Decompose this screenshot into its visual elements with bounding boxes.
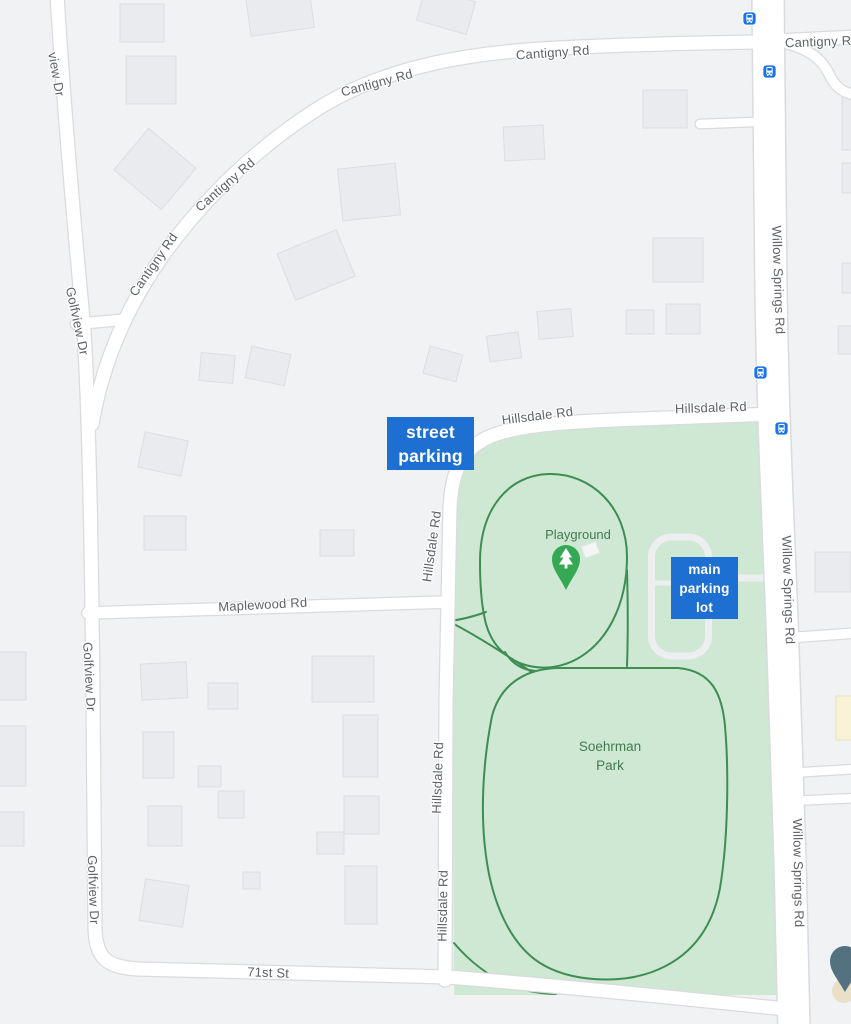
building [815, 552, 851, 592]
building [144, 516, 186, 550]
building [643, 90, 687, 128]
building [842, 163, 851, 193]
building [198, 766, 221, 787]
road-stub [700, 122, 754, 124]
building [0, 726, 26, 786]
building [343, 715, 378, 777]
road-label-willow-3: Willow Springs Rd [790, 818, 807, 927]
building [140, 662, 188, 700]
commercial-building [836, 696, 851, 740]
bus-stop-icon[interactable] [775, 422, 789, 436]
building [208, 683, 238, 709]
building [344, 796, 379, 834]
building [626, 310, 654, 334]
park-area [451, 412, 788, 995]
bus-stop-icon[interactable] [743, 12, 757, 26]
map-canvas[interactable]: view Dr Golfview Dr Golfview Dr Golfview… [0, 0, 851, 1024]
building [842, 263, 851, 293]
building [120, 4, 164, 42]
bus-stop-icon[interactable] [763, 65, 777, 79]
road-label-golfview-3: Golfview Dr [85, 855, 102, 925]
building [0, 812, 24, 846]
bus-stop-icon[interactable] [754, 366, 768, 380]
building [148, 806, 182, 846]
street-parking-annotation: street parking [387, 417, 474, 470]
building [126, 56, 176, 104]
road-label-hillsdale-v3: Hillsdale Rd [434, 870, 450, 942]
road-label-hillsdale-v2: Hillsdale Rd [429, 742, 446, 814]
building [653, 238, 703, 282]
building [143, 732, 174, 778]
building [486, 332, 521, 362]
playground-label: Playground [525, 527, 631, 542]
building [666, 304, 700, 334]
road-label-71st: 71st St [247, 964, 290, 980]
building [199, 353, 235, 384]
building [337, 163, 400, 221]
road-side-2 [790, 769, 851, 773]
building [345, 866, 377, 924]
park-name-label: Soehrman Park [560, 737, 660, 775]
building [317, 832, 344, 854]
road-label-hillsdale-h2: Hillsdale Rd [675, 399, 747, 416]
building [842, 93, 851, 150]
building [218, 791, 244, 818]
road-label-cantigny-5: Cantigny Rd [785, 33, 851, 51]
road-side-3 [791, 798, 851, 801]
main-parking-lot-annotation: main parking lot [671, 557, 738, 619]
building [0, 652, 26, 700]
building [503, 125, 545, 161]
building [139, 879, 189, 927]
building [312, 656, 374, 702]
building [537, 309, 573, 340]
building [243, 872, 260, 889]
building [320, 530, 354, 556]
building [838, 326, 851, 354]
